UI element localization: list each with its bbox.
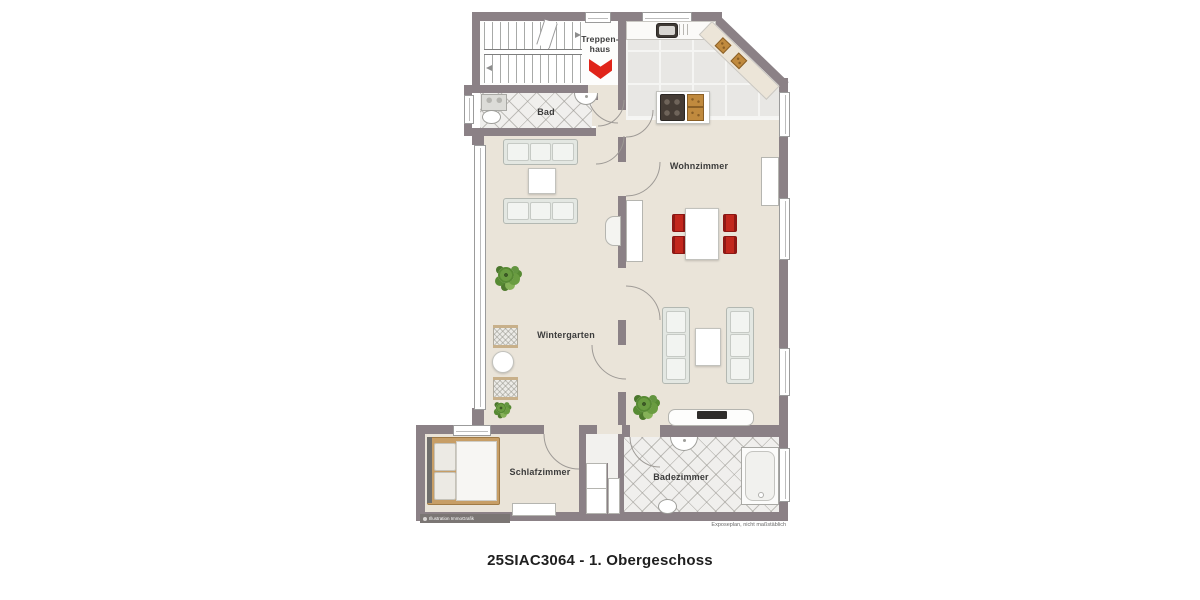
bed-duvet xyxy=(456,441,497,501)
window-wintergarten xyxy=(474,145,486,410)
wall xyxy=(579,425,597,434)
wall xyxy=(472,12,585,21)
sofa xyxy=(726,307,754,384)
label-wintergarten: Wintergarten xyxy=(537,330,595,340)
sofa xyxy=(503,198,578,224)
wall xyxy=(618,512,788,521)
bed-headboard xyxy=(427,437,432,503)
wicker-chair xyxy=(493,378,518,399)
wall xyxy=(472,136,484,145)
label-wohnzimmer: Wohnzimmer xyxy=(670,161,728,171)
wall xyxy=(472,12,480,85)
bistro-table xyxy=(492,351,514,373)
door-divider-low xyxy=(592,345,626,379)
wall xyxy=(660,425,788,437)
wall xyxy=(618,392,626,425)
window xyxy=(779,348,790,396)
label-bad: Bad xyxy=(537,107,555,117)
door-badezimmer xyxy=(630,437,660,467)
wall xyxy=(579,434,586,512)
dining-chair xyxy=(672,236,686,254)
dining-chair xyxy=(723,236,737,254)
window xyxy=(453,425,491,436)
pillow xyxy=(434,472,456,500)
bathtub xyxy=(741,447,779,505)
floor-plan: Treppen- haus Bad Wohnzimmer Wintergarte… xyxy=(0,0,1200,600)
window xyxy=(779,92,790,137)
info-icon xyxy=(423,517,427,521)
wall xyxy=(464,128,596,136)
kitchen-sink xyxy=(656,23,678,38)
dining-table xyxy=(685,208,719,260)
wall xyxy=(472,408,484,425)
plan-caption: 25SIAC3064 - 1. Obergeschoss xyxy=(0,552,1200,569)
label-treppenhaus: Treppen- haus xyxy=(581,34,619,54)
watermark: Illustration ImmoGrafik xyxy=(420,514,510,523)
plant xyxy=(496,403,506,413)
cutting-board xyxy=(730,52,747,69)
door-divider-mid xyxy=(626,286,660,320)
door-divider-top xyxy=(626,162,660,196)
coffee-table xyxy=(695,328,721,366)
cutting-board xyxy=(687,94,704,107)
door-bad xyxy=(598,100,624,126)
desk-chair xyxy=(605,216,621,246)
plant xyxy=(498,267,514,283)
stair-direction-arrow-icon xyxy=(575,32,581,38)
toilet xyxy=(658,499,677,514)
tv xyxy=(697,411,727,419)
sofa xyxy=(503,139,578,165)
wall xyxy=(779,78,788,92)
door-pass-kitchen xyxy=(626,110,653,137)
window xyxy=(779,448,790,502)
toilet xyxy=(482,110,501,124)
wall xyxy=(464,85,472,95)
wall xyxy=(779,394,788,448)
sofa xyxy=(662,307,690,384)
desk xyxy=(626,200,643,262)
dining-chair xyxy=(672,214,686,232)
window xyxy=(779,198,790,260)
stair-break-line xyxy=(536,19,557,48)
staircase xyxy=(484,22,582,83)
washing-machine xyxy=(481,94,507,111)
wall xyxy=(472,85,588,93)
wall xyxy=(618,20,626,110)
scale-disclaimer: Exposeplan, nicht maßstäblich xyxy=(600,522,786,528)
stair-handrail xyxy=(484,49,582,55)
wardrobe xyxy=(608,478,620,514)
wicker-chair xyxy=(493,326,518,347)
sideboard xyxy=(761,157,779,206)
door-wintergarten xyxy=(596,136,624,164)
wall xyxy=(416,425,425,521)
stair-direction-arrow-icon xyxy=(486,65,492,71)
wardrobe xyxy=(586,488,607,514)
label-schlafzimmer: Schlafzimmer xyxy=(510,467,571,477)
wall xyxy=(618,320,626,345)
kitchen-drainer xyxy=(679,24,691,35)
plant xyxy=(636,396,652,412)
label-badezimmer: Badezimmer xyxy=(653,472,709,482)
pillow xyxy=(434,443,456,471)
dining-chair xyxy=(723,214,737,232)
stove xyxy=(660,94,685,121)
window xyxy=(585,12,611,23)
wall xyxy=(779,135,788,198)
dresser xyxy=(512,503,556,516)
wall xyxy=(779,258,788,348)
cutting-board xyxy=(715,37,732,54)
door-schlafzimmer xyxy=(544,434,579,469)
cutting-board xyxy=(687,107,704,121)
watermark-text: Illustration ImmoGrafik xyxy=(429,516,474,521)
window xyxy=(464,95,474,124)
wardrobe xyxy=(586,463,607,489)
side-table xyxy=(528,168,556,194)
wall xyxy=(489,425,544,434)
